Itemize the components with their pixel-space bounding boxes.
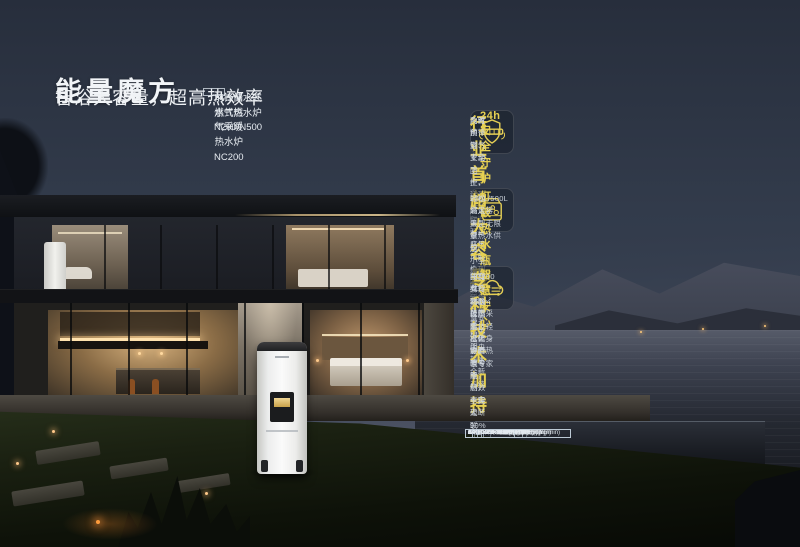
- house-right-wall: [424, 303, 454, 397]
- product-brand-logo: [275, 356, 289, 358]
- product-label-text: [266, 430, 298, 432]
- spec-label-cell: △t=25K时的产热水能力(kg/min): [465, 429, 571, 438]
- spec-value-cell: 14: [465, 429, 478, 438]
- house-ground-floor: [14, 303, 454, 397]
- shore-light: [764, 325, 766, 327]
- model-line: 前锋储水式燃气采暖热水炉NC200: [214, 92, 244, 166]
- glass-mullions: [50, 225, 396, 291]
- feature-line: NC200支持250㎡范围采暖，轻松化身全屋热暖专家: [470, 271, 495, 370]
- indoor-heater-unit: [44, 242, 66, 294]
- model-names-box: 前锋储水式燃气热水炉N200/N500 前锋储水式燃气采暖热水炉NC200: [203, 88, 225, 96]
- roof-edge-light: [235, 214, 440, 216]
- product-vent: [261, 460, 268, 472]
- fire-pit-glow: [62, 508, 158, 540]
- product-screen: [274, 398, 290, 407]
- glass-mullions: [14, 303, 454, 397]
- product-vent: [296, 460, 303, 472]
- garden-light: [205, 492, 208, 495]
- poster-canvas: 能量魔方 智浴大容量，超高热效率 前锋储水式燃气热水炉N200/N500 前锋储…: [0, 0, 800, 547]
- shore-light: [640, 331, 642, 333]
- product-top-cap: [257, 342, 307, 351]
- product-display-panel: [270, 392, 294, 422]
- floor-slab: [0, 289, 458, 303]
- garden-light: [52, 430, 55, 433]
- fire-pit: [96, 520, 100, 524]
- water-heater-product: [257, 342, 307, 474]
- garden-light: [16, 462, 19, 465]
- house-upper-floor: [14, 217, 454, 291]
- shore-light: [702, 328, 704, 330]
